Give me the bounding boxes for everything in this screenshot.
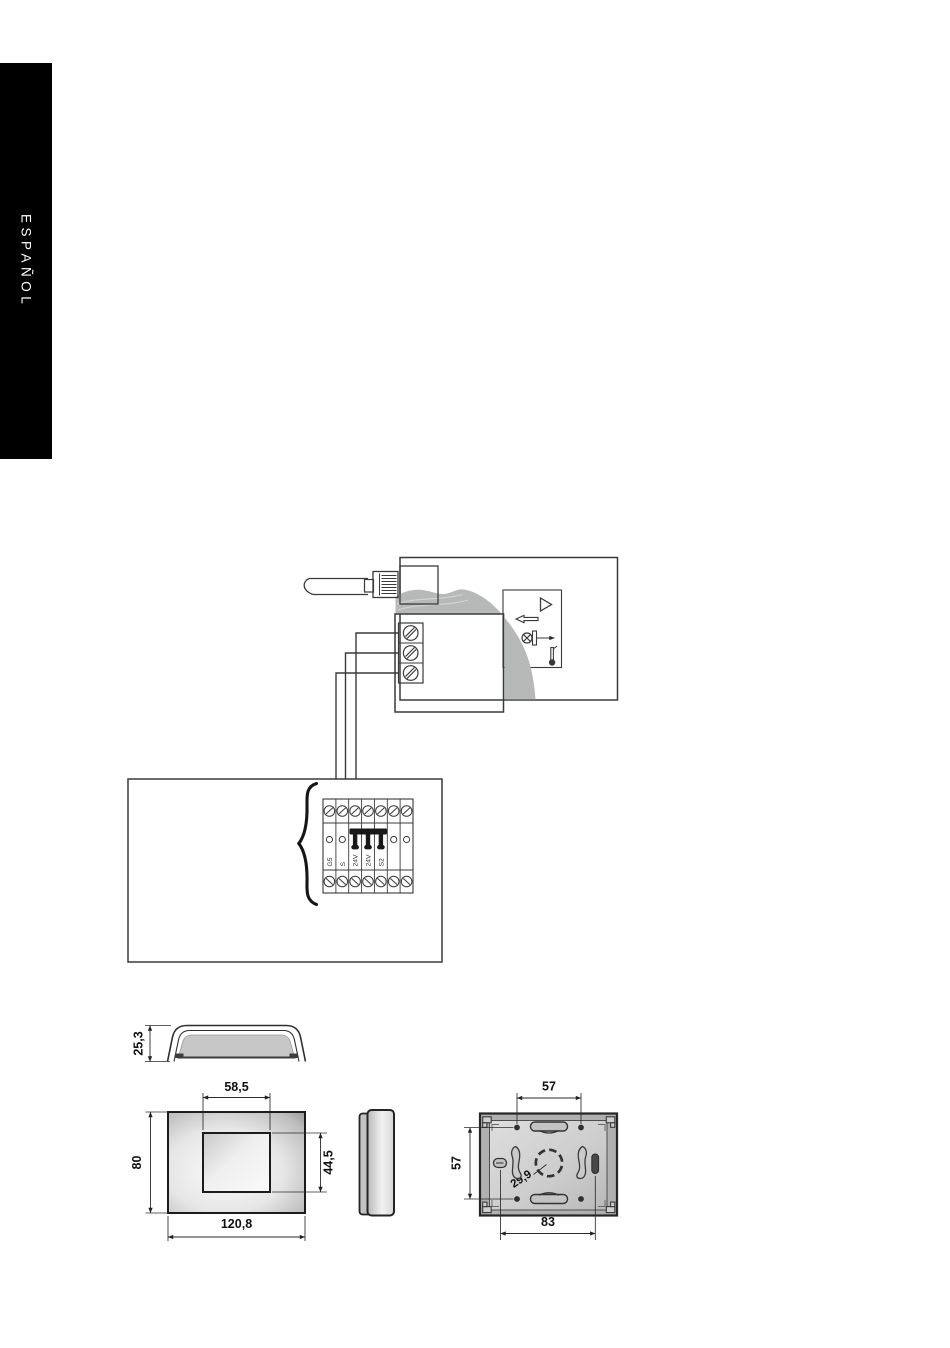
dim-display-height: 44,5 [322, 1150, 336, 1174]
front-display [203, 1133, 270, 1192]
cable [304, 579, 368, 595]
figure-front-view: 58,5 80 44,5 120,8 [130, 1080, 336, 1241]
screw-icon [403, 646, 418, 661]
screw-icons-top [324, 806, 412, 817]
terminal-label: 24V [353, 854, 360, 867]
dim-hole-spacing-h: 57 [542, 1080, 556, 1094]
profile-foot [290, 1054, 298, 1059]
wire-1 [356, 633, 399, 779]
thermometer-icon [549, 646, 557, 666]
figure-unit-terminal-block: G5 S 24V 24V S2 [128, 779, 442, 962]
terminal-strip: G5 S 24V 24V S2 [323, 799, 413, 893]
side-front-slab [368, 1110, 395, 1216]
dim-front-width: 120,8 [221, 1217, 252, 1231]
terminal-label: S2 [379, 858, 386, 867]
brace [299, 784, 317, 905]
triangle-icon [541, 598, 552, 611]
dim-slot-spacing: 83 [541, 1215, 555, 1229]
dim-display-width: 58,5 [224, 1080, 248, 1094]
screw-icons-bottom [324, 876, 412, 887]
figure-top-view: 25,3 [132, 1026, 306, 1062]
figure-side-view [360, 1110, 395, 1216]
wire-2 [346, 653, 399, 779]
screw-icon [403, 626, 418, 641]
jumper-icon [350, 829, 388, 850]
figure-thermostat-wiring [304, 558, 617, 780]
profile-foot [176, 1054, 184, 1059]
valve-icon [522, 631, 555, 645]
dim-hole-spacing-v: 57 [450, 1156, 464, 1170]
terminal-label: 24V [366, 854, 373, 867]
dim-front-height: 80 [130, 1156, 144, 1170]
terminal-label: S [340, 862, 347, 867]
screwdriver-icon [516, 615, 538, 622]
figure-back-plate: 29,9 57 57 83 [450, 1080, 618, 1241]
rj-plug-icon [365, 572, 399, 598]
dim-top-view-height: 25,3 [132, 1031, 146, 1055]
terminal-label: G5 [327, 857, 334, 866]
terminal-block-3way [399, 623, 424, 683]
profile-fill [179, 1035, 295, 1057]
screw-icon [403, 666, 418, 681]
manual-page: ESPAÑOL [0, 0, 950, 1348]
unit-outline [128, 779, 442, 962]
figures-canvas: G5 S 24V 24V S2 25,3 [0, 0, 950, 1348]
